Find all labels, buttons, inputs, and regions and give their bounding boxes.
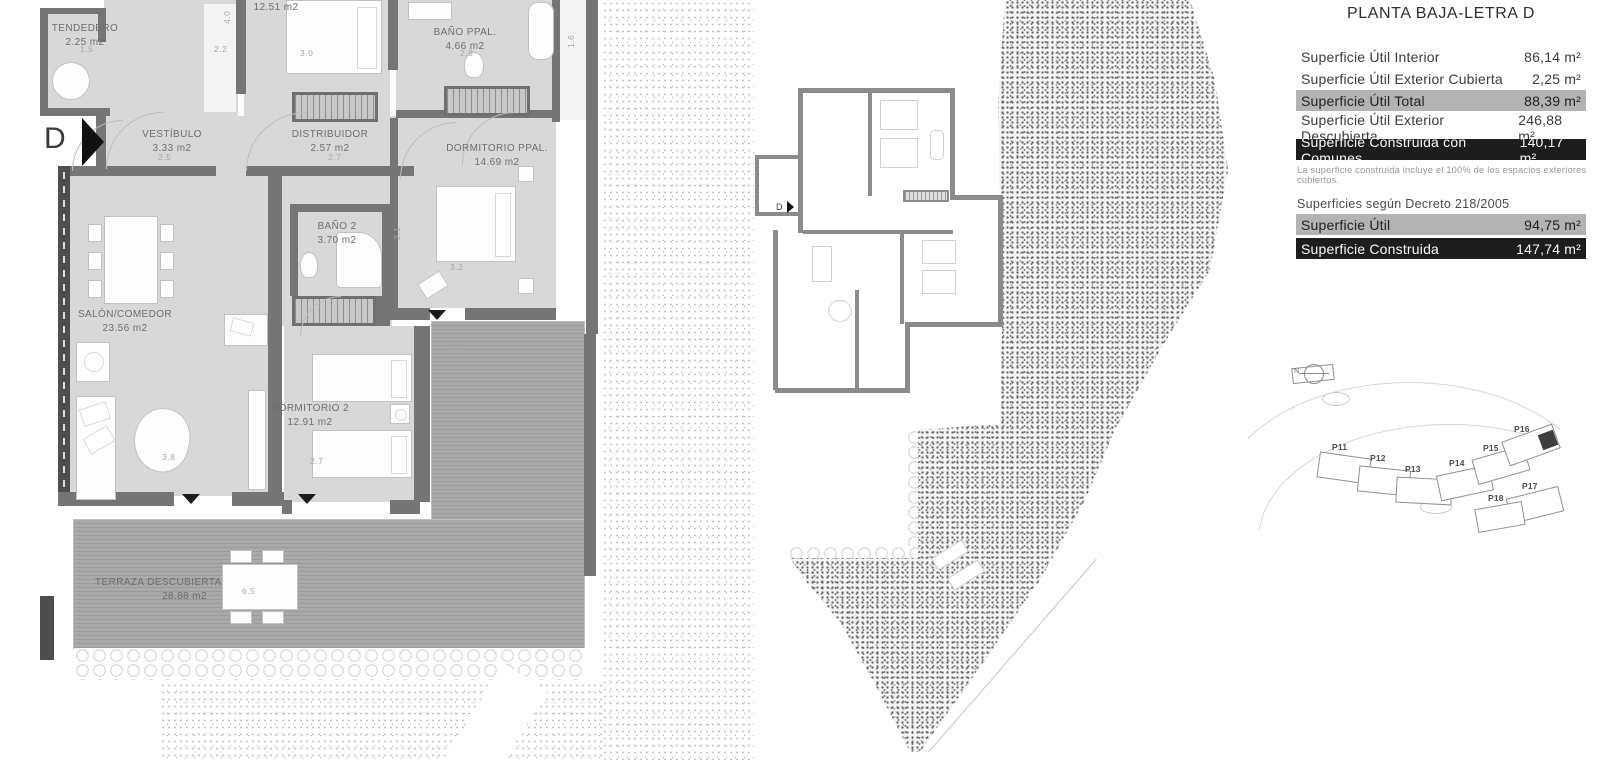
wall bbox=[40, 8, 104, 14]
mini-wardrobe bbox=[903, 190, 949, 202]
table-row: Superficie Útil Interior 86,14 m² bbox=[1296, 46, 1586, 67]
mini-dining-table bbox=[812, 246, 832, 282]
mini-wall bbox=[900, 232, 904, 324]
mini-hedge bbox=[788, 546, 918, 558]
chair bbox=[88, 224, 102, 242]
wall-party bbox=[40, 596, 54, 660]
room-name: DISTRIBUIDOR bbox=[292, 129, 368, 140]
wall bbox=[236, 0, 246, 94]
wall bbox=[390, 500, 420, 514]
mini-bathtub bbox=[930, 130, 944, 160]
table-row: Superficie Útil Exterior Cubierta 2,25 m… bbox=[1296, 68, 1586, 89]
dimension: 2.8 bbox=[460, 48, 473, 58]
mini-unit-letter: D bbox=[776, 202, 783, 212]
dimension: 3.2 bbox=[450, 262, 463, 272]
chair bbox=[88, 280, 102, 298]
row-value: 140,17 m² bbox=[1520, 134, 1581, 166]
wall bbox=[390, 308, 430, 320]
room-area: 3.70 m2 bbox=[318, 235, 357, 246]
table-row-highlight-gray: Superficie Útil 94,75 m² bbox=[1296, 214, 1586, 235]
mini-wall bbox=[950, 88, 955, 200]
room-name: TENDEDERO bbox=[52, 23, 118, 34]
chair bbox=[262, 550, 284, 563]
decree-heading: Superficies según Decreto 218/2005 bbox=[1297, 197, 1509, 211]
row-label: Superficie Útil Interior bbox=[1301, 49, 1440, 65]
row-label: Superficie Útil bbox=[1301, 217, 1390, 233]
room-area: 14.69 m2 bbox=[475, 157, 520, 168]
room-name: DORMITORIO PPAL. bbox=[446, 143, 548, 154]
building-label-p13: P13 bbox=[1405, 464, 1421, 474]
door-triangle bbox=[298, 494, 316, 504]
mini-wall bbox=[775, 388, 910, 393]
outdoor-table bbox=[222, 564, 298, 610]
dimension: 2.3 bbox=[448, 342, 461, 352]
wall bbox=[414, 326, 430, 502]
dimension: 1.6 bbox=[566, 35, 576, 48]
mini-bed bbox=[880, 100, 918, 130]
mini-bed bbox=[922, 240, 956, 264]
room-area: 28.88 m2 bbox=[162, 591, 207, 602]
dimension: 2.2 bbox=[214, 44, 227, 54]
chair bbox=[160, 252, 174, 270]
side-table bbox=[76, 342, 110, 382]
row-value: 88,39 m² bbox=[1524, 93, 1581, 109]
north-icon bbox=[1304, 364, 1324, 384]
table-row-highlight-dark: Superficie Construida 147,74 m² bbox=[1296, 238, 1586, 259]
door-triangle bbox=[182, 494, 200, 504]
bathroom-sink bbox=[408, 2, 452, 20]
wall bbox=[282, 500, 292, 514]
row-value: 86,14 m² bbox=[1524, 49, 1581, 65]
dimension: 1.5 bbox=[80, 44, 93, 54]
chair bbox=[160, 280, 174, 298]
side-gallery bbox=[560, 0, 586, 120]
row-label: Superficie Útil Total bbox=[1301, 93, 1425, 109]
building-label-p18: P18 bbox=[1488, 493, 1504, 503]
wall bbox=[465, 308, 556, 320]
sofa bbox=[76, 396, 116, 500]
room-name: SALÓN/COMEDOR bbox=[78, 309, 172, 320]
row-label: Superficie Construida bbox=[1301, 241, 1439, 257]
room-label-bathroom2: BAÑO 2 3.70 m2 bbox=[297, 220, 377, 248]
wall bbox=[382, 204, 390, 296]
row-value: 2,25 m² bbox=[1532, 71, 1581, 87]
room-label-bedroom2: DORMITORIO 2 12.91 m2 bbox=[255, 402, 365, 430]
wall bbox=[390, 118, 398, 318]
building-label-p16: P16 bbox=[1514, 424, 1530, 434]
mini-wall bbox=[798, 88, 954, 93]
room-name: BAÑO 2 bbox=[317, 221, 356, 232]
room-name: VESTÍBULO bbox=[142, 129, 202, 140]
unit-letter: D bbox=[44, 122, 66, 156]
dimension: 3.0 bbox=[300, 48, 313, 58]
dashed-expansion-line bbox=[63, 172, 65, 502]
row-value: 147,74 m² bbox=[1516, 241, 1581, 257]
mini-wall bbox=[950, 195, 1003, 200]
wall bbox=[586, 0, 598, 334]
building-label-p15: P15 bbox=[1483, 443, 1499, 453]
north-label: N bbox=[1294, 368, 1299, 375]
dimension: 3.8 bbox=[162, 452, 175, 462]
chair bbox=[230, 611, 252, 624]
room-area: 12.51 m2 bbox=[254, 2, 299, 13]
row-value: 94,75 m² bbox=[1524, 217, 1581, 233]
pond bbox=[1322, 392, 1350, 406]
building-label-p11: P11 bbox=[1332, 442, 1347, 452]
room-name: DORMITORIO 2 bbox=[271, 403, 349, 414]
mini-rug bbox=[828, 300, 852, 322]
table-row-highlight-gray: Superficie Útil Total 88,39 m² bbox=[1296, 90, 1586, 111]
wall bbox=[290, 204, 298, 296]
building-label-p14: P14 bbox=[1449, 458, 1465, 468]
dining-table bbox=[104, 216, 158, 304]
bathtub bbox=[528, 2, 554, 60]
wall bbox=[290, 204, 390, 212]
room-label-vestibule: VESTÍBULO 3.33 m2 bbox=[122, 128, 222, 156]
row-label: Superficie Construida con Comunes bbox=[1301, 134, 1520, 166]
mini-unit-arrow-icon bbox=[787, 201, 794, 213]
wall bbox=[376, 296, 390, 326]
page-title: PLANTA BAJA-LETRA D bbox=[1296, 5, 1586, 23]
mini-wall bbox=[905, 322, 910, 390]
plan-sheet: D TENDEDERO 2.25 m2 12.51 m2 BAÑO PPAL. … bbox=[0, 0, 1620, 760]
room-label-terrace: TERRAZA DESCUBIERTA 28.88 m2 bbox=[95, 576, 207, 604]
bed bbox=[312, 430, 412, 478]
dimension: 2.5 bbox=[158, 152, 171, 162]
wall bbox=[584, 334, 596, 576]
dimension: 6.5 bbox=[242, 586, 255, 596]
dimension: 2.7 bbox=[328, 152, 341, 162]
mini-bed bbox=[880, 138, 918, 168]
armchair bbox=[224, 314, 268, 346]
wall bbox=[388, 0, 398, 70]
chair bbox=[160, 224, 174, 242]
room-area: 12.91 m2 bbox=[288, 417, 333, 428]
building-label-p12: P12 bbox=[1370, 453, 1386, 463]
chair bbox=[230, 550, 252, 563]
wall bbox=[268, 174, 282, 496]
ground-texture bbox=[602, 0, 754, 760]
room-name: TERRAZA DESCUBIERTA bbox=[95, 577, 222, 588]
room-area: 23.56 m2 bbox=[103, 323, 148, 334]
table-note: La superficie construida incluye el 100%… bbox=[1297, 165, 1587, 185]
mini-wall bbox=[773, 230, 778, 390]
mini-hedge bbox=[906, 430, 918, 556]
garden-texture bbox=[760, 0, 1240, 760]
mini-wall bbox=[803, 230, 953, 234]
chair bbox=[88, 252, 102, 270]
dimension: 2.7 bbox=[310, 456, 323, 466]
nightstand bbox=[390, 404, 410, 424]
mini-wall bbox=[755, 155, 800, 159]
unit-arrow-icon bbox=[82, 118, 104, 166]
room-label-bedroom-main: DORMITORIO PPAL. 14.69 m2 bbox=[437, 142, 557, 170]
toilet bbox=[300, 252, 318, 278]
chair bbox=[262, 611, 284, 624]
room-label-living: SALÓN/COMEDOR 23.56 m2 bbox=[70, 308, 180, 336]
row-label: Superficie Útil Exterior Cubierta bbox=[1301, 71, 1503, 87]
bed bbox=[436, 186, 516, 262]
room-label-bedroom3: 12.51 m2 bbox=[246, 1, 306, 15]
bed bbox=[312, 354, 412, 402]
room-name: BAÑO PPAL. bbox=[434, 27, 497, 38]
mini-wall bbox=[755, 155, 759, 215]
mini-wall bbox=[998, 195, 1003, 327]
washing-machine bbox=[52, 62, 90, 100]
door-triangle bbox=[428, 310, 446, 320]
mini-wall bbox=[855, 290, 859, 390]
building-label-p17: P17 bbox=[1522, 481, 1538, 491]
table-row-highlight-dark: Superficie Construida con Comunes 140,17… bbox=[1296, 139, 1586, 160]
mini-wall bbox=[868, 92, 872, 196]
mini-bed bbox=[922, 270, 956, 294]
terrace-deck-upper bbox=[432, 322, 584, 522]
wardrobe bbox=[444, 86, 530, 116]
dimension: 9.4 bbox=[314, 552, 327, 562]
mini-wall bbox=[905, 322, 1003, 327]
dimension: 2.1 bbox=[392, 227, 402, 240]
nightstand bbox=[518, 278, 534, 294]
dimension: 4.0 bbox=[222, 11, 232, 24]
